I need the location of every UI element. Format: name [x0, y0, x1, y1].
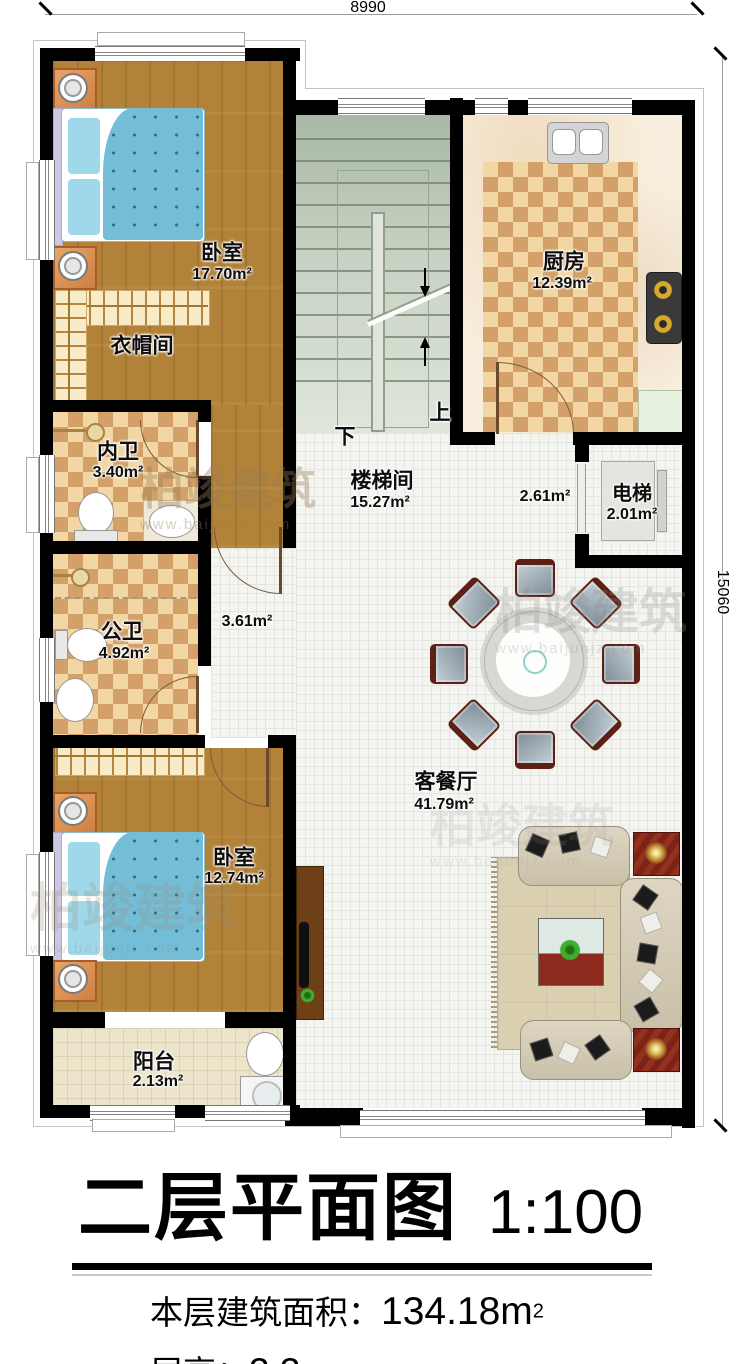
wall: [198, 554, 211, 666]
floor-area-sup: 2: [533, 1301, 544, 1323]
bedroom2-closet-rod: [55, 755, 203, 757]
window: [39, 160, 55, 260]
kitchen-sink-basin: [579, 129, 603, 155]
window-sill: [97, 32, 245, 46]
coffee-table-plant: [558, 938, 582, 962]
fridge: [638, 390, 684, 434]
bath-inner-label: 内卫: [97, 442, 139, 463]
dining-table-center: [523, 650, 547, 674]
end-table-lamp: [645, 842, 667, 864]
shower-partition: [55, 597, 196, 599]
wall: [285, 1108, 363, 1126]
rug-fringe: [491, 857, 497, 1048]
bed-pillow: [66, 899, 102, 957]
window: [205, 1105, 290, 1121]
wall: [225, 1012, 296, 1028]
bedroom2-door-leaf: [266, 748, 269, 807]
balcony-area: 2.13m²: [133, 1074, 184, 1090]
elevator-area: 2.01m²: [607, 507, 658, 523]
kitchen-sink-basin: [552, 129, 576, 155]
hall-left-area: 3.61m²: [222, 614, 273, 630]
window: [39, 638, 55, 702]
nightstand-lamp: [58, 251, 88, 281]
sink: [56, 678, 94, 722]
bedroom2-area: 12.74m²: [204, 871, 264, 887]
bed-quilt: [103, 832, 203, 960]
window-sill: [92, 1119, 175, 1132]
living-label: 客餐厅: [415, 772, 478, 793]
eave-line: [703, 88, 704, 1126]
wall: [575, 555, 695, 568]
bath-inner-area: 3.40m²: [93, 465, 144, 481]
wall: [198, 476, 211, 541]
window: [39, 455, 55, 533]
tv: [299, 922, 309, 988]
scale-label: 1:100: [488, 1177, 643, 1248]
kitchen-area: 12.39m²: [532, 276, 592, 292]
wall: [575, 534, 589, 568]
bed-quilt: [103, 108, 203, 240]
nightstand-lamp: [58, 964, 88, 994]
bedroom1-area: 17.70m²: [192, 267, 252, 283]
eave-line: [305, 40, 306, 88]
title-underline-shadow: [72, 1274, 652, 1276]
window: [39, 852, 55, 956]
title-underline: [72, 1263, 652, 1270]
stair-arrow-stem: [424, 268, 426, 286]
storey-height-label: 层高：: [150, 1354, 249, 1364]
kitchen-label: 厨房: [543, 252, 585, 273]
window: [360, 1110, 645, 1126]
bath-public-door-leaf: [196, 676, 199, 733]
nightstand-lamp: [58, 796, 88, 826]
balcony-sink: [246, 1032, 284, 1076]
sofa-pillow: [558, 831, 581, 854]
wall: [288, 100, 338, 115]
shower-head: [71, 568, 90, 587]
dimension-tick: [713, 1118, 727, 1132]
wall: [642, 1108, 695, 1126]
shower-head: [86, 423, 105, 442]
balcony-label: 阳台: [133, 1052, 175, 1073]
dining-chair: [515, 731, 555, 769]
floor-area-value: 134.18m: [381, 1290, 533, 1333]
stove-burner: [653, 314, 673, 334]
wall: [198, 400, 211, 422]
bath-inner-door-leaf: [196, 420, 199, 478]
storey-height-value: 3.3m: [249, 1351, 331, 1364]
wall: [40, 1012, 105, 1028]
window: [338, 98, 425, 114]
stair-arrow-up: [420, 337, 430, 348]
corridor-door-leaf: [279, 527, 282, 594]
stairwell-label: 楼梯间: [351, 471, 414, 492]
bed-pillow: [66, 116, 102, 176]
cloakroom-rod: [68, 290, 70, 402]
cabinet-plant: [300, 988, 315, 1003]
window-sill: [26, 162, 39, 260]
dining-chair: [430, 644, 468, 684]
wall: [450, 432, 495, 445]
wall: [450, 98, 463, 445]
wall: [682, 100, 695, 1128]
bath-public-area: 4.92m²: [99, 646, 150, 662]
floor-area-label: 本层建筑面积：: [150, 1294, 381, 1331]
elevator-label: 电梯: [612, 484, 652, 504]
stair-arrow-stem: [424, 348, 426, 366]
floor-plan-canvas: 8990 15060: [0, 0, 750, 1364]
stairwell-area: 15.27m²: [350, 495, 410, 511]
cloakroom-rack-left: [55, 290, 87, 404]
elevator-door-slot: [657, 470, 667, 532]
window: [95, 46, 245, 62]
right-dimension-label: 15060: [714, 570, 730, 615]
bed-pillow: [66, 177, 102, 237]
toilet: [78, 492, 114, 534]
page-title: 二层平面图: [78, 1148, 458, 1255]
top-dimension-label: 8990: [350, 0, 386, 16]
stove-burner: [653, 280, 673, 300]
wall: [53, 400, 211, 412]
wall: [283, 735, 296, 1118]
wall: [283, 48, 296, 548]
living-area: 41.79m²: [414, 797, 474, 813]
eave-line: [305, 88, 704, 89]
wall: [575, 432, 589, 462]
nightstand-lamp: [58, 73, 88, 103]
wall: [573, 432, 695, 445]
shower-head: [53, 574, 73, 577]
title-block: 二层平面图 1:100 本层建筑面积：134.18m2 层高：3.3m: [0, 1148, 750, 1364]
sink: [149, 505, 195, 538]
end-table-lamp: [645, 1038, 667, 1060]
bedroom1-label: 卧室: [201, 243, 243, 264]
window-sill: [26, 457, 39, 533]
window-sill: [340, 1125, 672, 1138]
dimension-tick: [713, 46, 727, 60]
wall: [53, 541, 211, 554]
kitchen-door-leaf: [496, 362, 499, 434]
window: [528, 98, 632, 114]
shower-head: [53, 429, 86, 432]
wall: [40, 735, 205, 748]
cloakroom-label: 衣帽间: [111, 336, 174, 357]
hall-right-area: 2.61m²: [520, 489, 571, 505]
wall: [508, 100, 528, 115]
elevator-entry-line: [577, 464, 586, 532]
dining-chair: [602, 644, 640, 684]
stair-arrow-down: [420, 286, 430, 297]
window-sill: [26, 854, 39, 956]
bed-pillow: [66, 840, 102, 898]
stair-up-label: 上: [430, 403, 451, 424]
sofa-pillow: [636, 942, 658, 964]
bedroom2-label: 卧室: [213, 848, 255, 869]
bath-public-label: 公卫: [101, 622, 143, 643]
dining-chair: [515, 559, 555, 597]
window: [475, 98, 508, 114]
stair-down-label: 下: [335, 427, 356, 448]
